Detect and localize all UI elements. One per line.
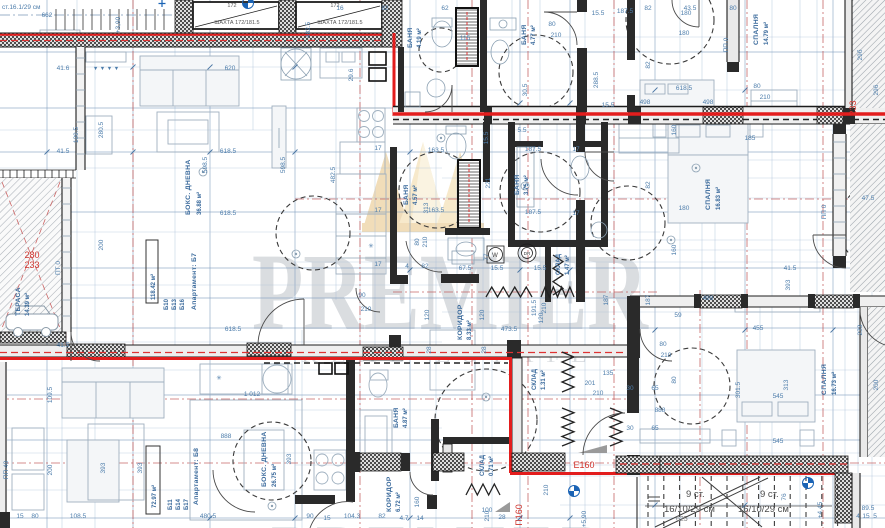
svg-text:545: 545 [773, 438, 784, 445]
svg-text:28: 28 [481, 346, 488, 354]
svg-text:233: 233 [857, 324, 864, 335]
svg-text:201: 201 [585, 380, 596, 387]
svg-text:210: 210 [484, 510, 491, 521]
svg-text:82: 82 [378, 513, 386, 520]
svg-text:89.5: 89.5 [862, 505, 875, 512]
svg-text:16.73 м²: 16.73 м² [831, 372, 838, 395]
svg-text:17: 17 [374, 207, 382, 214]
svg-text:4.19 м²: 4.19 м² [416, 28, 423, 48]
svg-text:82: 82 [644, 5, 652, 12]
svg-text:14: 14 [416, 515, 424, 522]
svg-text:393: 393 [100, 462, 107, 473]
svg-text:БАНЯ: БАНЯ [407, 27, 414, 48]
svg-text:15.5: 15.5 [534, 265, 547, 272]
svg-text:29б: 29б [856, 49, 864, 60]
svg-text:80: 80 [659, 341, 667, 348]
svg-text:80: 80 [31, 513, 39, 520]
svg-text:313: 313 [783, 379, 790, 390]
svg-text:498: 498 [640, 99, 651, 106]
svg-text:4.77 м²: 4.77 м² [530, 25, 537, 45]
svg-text:210: 210 [593, 390, 604, 397]
svg-text:41.5: 41.5 [57, 342, 70, 349]
svg-text:15.5: 15.5 [592, 10, 605, 17]
svg-text:620: 620 [225, 65, 236, 72]
svg-text:625: 625 [676, 516, 688, 523]
svg-text:104.3: 104.3 [344, 513, 361, 520]
svg-text:455: 455 [753, 325, 764, 332]
svg-text:Апартамент: Б8: Апартамент: Б8 [193, 448, 200, 505]
svg-text:296: 296 [873, 84, 880, 95]
svg-text:17: 17 [374, 261, 382, 268]
svg-text:62: 62 [441, 5, 449, 12]
svg-text:5.5: 5.5 [517, 127, 526, 134]
svg-text:41.5: 41.5 [784, 265, 797, 272]
svg-text:160: 160 [671, 244, 678, 255]
svg-text:5: 5 [873, 513, 877, 520]
svg-text:БАНЯ: БАНЯ [521, 24, 528, 45]
svg-text:Апартамент: Б7: Апартамент: Б7 [191, 253, 198, 310]
svg-text:210: 210 [760, 94, 771, 101]
svg-text:4.87 м²: 4.87 м² [402, 408, 409, 428]
svg-text:КОРИДОР: КОРИДОР [386, 476, 393, 512]
svg-text:120: 120 [424, 309, 431, 320]
svg-text:17: 17 [572, 146, 580, 153]
svg-text:187: 187 [603, 294, 610, 305]
svg-text:80: 80 [548, 21, 556, 28]
svg-text:233: 233 [848, 100, 858, 115]
svg-text:СКЛАД: СКЛАД [532, 368, 538, 390]
svg-text:15.5: 15.5 [483, 131, 490, 144]
svg-text:W: W [492, 253, 498, 259]
svg-text:Б13: Б13 [172, 298, 178, 310]
svg-text:482.5: 482.5 [305, 21, 312, 38]
svg-text:БАНЯ: БАНЯ [514, 174, 521, 195]
svg-text:6.72 м²: 6.72 м² [395, 492, 402, 512]
svg-text:118.42 м²: 118.42 м² [150, 274, 157, 300]
svg-text:Б11: Б11 [168, 499, 174, 510]
svg-text:28: 28 [498, 514, 506, 521]
svg-text:120: 120 [479, 309, 486, 320]
svg-text:ТЕРАСА: ТЕРАСА [15, 287, 22, 316]
svg-text:888: 888 [655, 407, 666, 414]
svg-text:120: 120 [538, 312, 545, 323]
svg-text:598.5: 598.5 [202, 156, 209, 173]
svg-text:115: 115 [460, 35, 471, 42]
svg-text:280.5: 280.5 [98, 121, 105, 138]
svg-text:210: 210 [361, 306, 372, 313]
svg-text:30.5: 30.5 [522, 83, 529, 96]
svg-text:41.6: 41.6 [57, 65, 70, 72]
svg-text:ПП 0: ПП 0 [723, 37, 730, 52]
svg-text:30: 30 [626, 385, 634, 392]
svg-text:618.5: 618.5 [220, 210, 237, 217]
svg-text:82: 82 [645, 61, 652, 69]
svg-text:80: 80 [753, 83, 761, 90]
svg-text:9 ст.: 9 ст. [760, 489, 779, 500]
svg-text:187.5: 187.5 [525, 146, 542, 153]
svg-text:1.31 м²: 1.31 м² [540, 370, 547, 390]
svg-text:473.5: 473.5 [501, 326, 518, 333]
svg-text:288.5: 288.5 [593, 71, 600, 88]
svg-text:65: 65 [651, 425, 659, 432]
svg-text:72.97 м²: 72.97 м² [151, 485, 158, 508]
svg-text:БАНЯ: БАНЯ [403, 184, 410, 205]
svg-text:СКЛАД: СКЛАД [480, 454, 486, 476]
svg-text:187: 187 [645, 294, 652, 305]
svg-text:82: 82 [645, 181, 652, 189]
svg-text:210: 210 [422, 236, 429, 247]
svg-text:4.7: 4.7 [399, 515, 408, 522]
svg-text:498: 498 [703, 295, 714, 302]
svg-text:4: 4 [856, 513, 860, 520]
svg-text:313: 313 [423, 202, 430, 213]
svg-text:П160: П160 [514, 504, 524, 526]
svg-text:9 ст.: 9 ст. [686, 489, 705, 500]
svg-text:41.5: 41.5 [57, 148, 70, 155]
svg-text:90: 90 [358, 292, 366, 299]
svg-text:14.39 м²: 14.39 м² [24, 293, 31, 316]
svg-text:+4,45: +4,45 [817, 501, 824, 518]
svg-text:16: 16 [336, 5, 344, 12]
svg-text:180: 180 [679, 30, 690, 37]
svg-text:16/10/29 см: 16/10/29 см [664, 504, 715, 515]
svg-text:DR: DR [524, 251, 531, 256]
svg-text:618.5: 618.5 [220, 148, 237, 155]
svg-text:221: 221 [485, 177, 492, 188]
svg-text:ШАХТА 172/181.5: ШАХТА 172/181.5 [317, 20, 362, 26]
svg-text:163.5: 163.5 [428, 147, 445, 154]
svg-text:Б14: Б14 [176, 498, 182, 510]
svg-text:✳: ✳ [216, 374, 222, 382]
svg-text:135: 135 [603, 370, 614, 377]
svg-text:618.5: 618.5 [676, 85, 693, 92]
svg-text:498: 498 [703, 99, 714, 106]
svg-text:301.5: 301.5 [735, 381, 742, 398]
svg-text:187.5: 187.5 [617, 8, 634, 15]
svg-text:210: 210 [661, 352, 672, 359]
svg-text:109.5: 109.5 [73, 126, 80, 143]
svg-text:36.88 м²: 36.88 м² [196, 192, 203, 215]
svg-text:180: 180 [679, 205, 690, 212]
svg-text:662: 662 [42, 12, 53, 19]
svg-text:43.5: 43.5 [684, 5, 697, 12]
svg-text:210: 210 [551, 32, 562, 39]
svg-text:160: 160 [414, 496, 421, 507]
svg-text:БОКС. ДНЕВНА: БОКС. ДНЕВНА [185, 159, 192, 215]
svg-text:СПАЛНЯ: СПАЛНЯ [821, 364, 828, 395]
svg-text:4.57 м²: 4.57 м² [412, 185, 419, 205]
svg-text:187.5: 187.5 [525, 209, 542, 216]
svg-text:482.5: 482.5 [330, 166, 337, 183]
svg-text:185: 185 [745, 135, 756, 142]
svg-text:163.5: 163.5 [428, 207, 445, 214]
svg-text:393: 393 [137, 462, 144, 473]
svg-text:210: 210 [543, 484, 550, 495]
svg-text:14.79 м²: 14.79 м² [763, 22, 770, 45]
svg-text:76: 76 [781, 493, 788, 501]
svg-text:ШАХТА 172/181.5: ШАХТА 172/181.5 [214, 20, 259, 26]
svg-text:393: 393 [286, 453, 293, 464]
svg-text:8.33 м²: 8.33 м² [466, 320, 473, 340]
svg-text:15.5: 15.5 [491, 265, 504, 272]
svg-text:0.71 м²: 0.71 м² [488, 456, 495, 476]
svg-text:598.5: 598.5 [280, 156, 287, 173]
svg-text:СПАЛНЯ: СПАЛНЯ [705, 179, 712, 210]
svg-text:80: 80 [729, 5, 737, 12]
svg-text:17: 17 [374, 145, 382, 152]
svg-text:191.5: 191.5 [531, 299, 538, 316]
svg-text:БАНЯ: БАНЯ [393, 407, 400, 428]
svg-text:16.83 м²: 16.83 м² [715, 187, 722, 210]
svg-text:618.5: 618.5 [225, 326, 242, 333]
svg-text:Е160: Е160 [573, 460, 594, 470]
svg-text:+5,90: +5,90 [581, 510, 588, 527]
svg-text:90: 90 [306, 513, 314, 520]
svg-text:67.5: 67.5 [459, 265, 472, 272]
svg-text:15: 15 [862, 513, 870, 520]
svg-text:200: 200 [873, 379, 880, 390]
svg-text:▼ ▼ ▼ ▼: ▼ ▼ ▼ ▼ [93, 66, 119, 72]
svg-text:108.5: 108.5 [70, 513, 87, 520]
svg-text:СПАЛНЯ: СПАЛНЯ [753, 14, 760, 45]
svg-text:210: 210 [541, 302, 548, 313]
svg-text:200: 200 [47, 464, 54, 475]
svg-text:82: 82 [421, 263, 429, 270]
svg-text:545: 545 [773, 393, 784, 400]
svg-text:82: 82 [381, 5, 389, 12]
svg-text:Б10: Б10 [164, 298, 170, 310]
svg-text:200: 200 [98, 239, 105, 250]
svg-text:233: 233 [24, 260, 39, 270]
svg-text:ст.16.1/29 см: ст.16.1/29 см [2, 4, 41, 11]
svg-text:77: 77 [483, 253, 490, 261]
svg-text:ПП 0: ПП 0 [821, 204, 828, 219]
svg-text:59: 59 [674, 312, 682, 319]
svg-text:17: 17 [572, 210, 580, 217]
svg-text:172: 172 [227, 3, 236, 9]
svg-text:+3,90: +3,90 [115, 16, 122, 33]
svg-text:4: 4 [405, 263, 409, 270]
svg-text:15.5: 15.5 [602, 102, 615, 109]
svg-text:КОРИДОР: КОРИДОР [457, 304, 464, 340]
svg-text:ПТ 0: ПТ 0 [55, 261, 62, 275]
svg-text:80: 80 [414, 238, 421, 246]
svg-text:СКЛАД: СКЛАД [556, 253, 562, 275]
svg-text:888: 888 [221, 433, 232, 440]
svg-text:28: 28 [426, 346, 433, 354]
svg-text:80: 80 [671, 376, 678, 384]
svg-text:1 012: 1 012 [244, 391, 261, 398]
svg-text:15: 15 [16, 513, 24, 520]
svg-text:16/10/29 см: 16/10/29 см [738, 504, 789, 515]
svg-text:30: 30 [626, 425, 634, 432]
svg-text:PREMIER: PREMIER [271, 514, 613, 528]
svg-text:26.75 м²: 26.75 м² [271, 464, 278, 487]
svg-text:ПП 40: ПП 40 [3, 460, 10, 479]
svg-text:480.5: 480.5 [200, 513, 217, 520]
svg-text:БОКС. ДНЕВНА: БОКС. ДНЕВНА [261, 431, 268, 487]
svg-text:✳: ✳ [368, 242, 374, 250]
svg-text:Б17: Б17 [184, 498, 190, 510]
svg-text:393: 393 [785, 279, 792, 290]
svg-text:15: 15 [323, 515, 331, 522]
svg-text:109.5: 109.5 [47, 386, 54, 403]
svg-text:280: 280 [24, 250, 39, 260]
svg-text:47.5: 47.5 [862, 195, 875, 202]
svg-text:29.6: 29.6 [348, 68, 355, 81]
svg-text:160: 160 [671, 124, 678, 135]
svg-text:Б16: Б16 [180, 298, 186, 310]
svg-text:65: 65 [651, 385, 659, 392]
svg-text:3.75 м²: 3.75 м² [523, 175, 530, 195]
